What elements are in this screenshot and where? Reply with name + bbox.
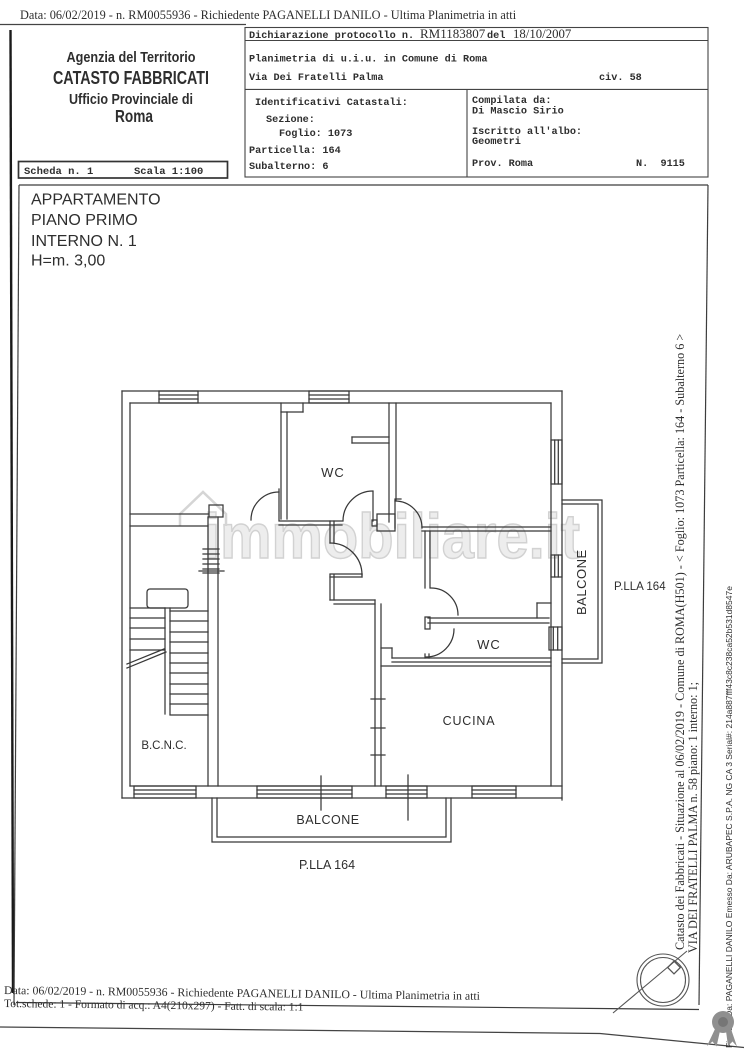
svg-text:VIA DEI FRATELLI PALMA n. 58 p: VIA DEI FRATELLI PALMA n. 58 piano: 1 in… — [686, 682, 700, 953]
svg-text:Prov. Roma: Prov. Roma — [472, 159, 533, 170]
svg-text:del: del — [487, 30, 505, 42]
svg-text:Roma: Roma — [115, 106, 153, 126]
svg-text:INTERNO N. 1: INTERNO N. 1 — [31, 233, 137, 250]
svg-text:P.LLA 164: P.LLA 164 — [299, 858, 355, 872]
svg-text:Agenzia del Territorio: Agenzia del Territorio — [67, 50, 196, 66]
svg-text:18/10/2007: 18/10/2007 — [513, 27, 572, 41]
svg-text:B.C.N.C.: B.C.N.C. — [141, 740, 186, 752]
svg-text:BALCONE: BALCONE — [296, 813, 359, 827]
svg-text:N. 9115: N. 9115 — [636, 159, 685, 170]
svg-text:CUCINA: CUCINA — [443, 714, 496, 728]
svg-text:H=m. 3,00: H=m. 3,00 — [31, 253, 105, 270]
svg-text:immobiliare.it: immobiliare.it — [204, 502, 580, 572]
svg-text:Data: 06/02/2019 - n. RM00559: Data: 06/02/2019 - n. RM0055936 - Richie… — [20, 8, 517, 22]
svg-text:Particella: 164: Particella: 164 — [249, 145, 341, 157]
svg-text:Planimetria di u.i.u. in Comun: Planimetria di u.i.u. in Comune di Roma — [249, 54, 487, 66]
svg-text:Firmato Da: PAGANELLI DANILO E: Firmato Da: PAGANELLI DANILO Emesso Da: … — [724, 586, 734, 1048]
svg-text:Geometri: Geometri — [472, 136, 521, 148]
svg-text:Scheda n. 1: Scheda n. 1 — [24, 166, 93, 178]
svg-text:Di Mascio Sirio: Di Mascio Sirio — [472, 106, 564, 118]
svg-text:Foglio: 1073: Foglio: 1073 — [279, 128, 352, 140]
svg-text:Subalterno: 6: Subalterno: 6 — [249, 161, 328, 173]
svg-text:BALCONE: BALCONE — [574, 549, 589, 615]
svg-text:APPARTAMENTO: APPARTAMENTO — [31, 192, 161, 209]
svg-text:Compilata da:: Compilata da: — [472, 95, 551, 107]
svg-text:Via Dei Fratelli Palma: Via Dei Fratelli Palma — [249, 72, 384, 84]
svg-text:Tot.schede: 1 - Formato di ac: Tot.schede: 1 - Formato di acq.: A4(210x… — [4, 998, 304, 1014]
svg-text:P.LLA 164: P.LLA 164 — [614, 581, 666, 593]
svg-text:PIANO PRIMO: PIANO PRIMO — [31, 212, 138, 229]
svg-text:Identificativi Catastali:: Identificativi Catastali: — [255, 97, 408, 109]
svg-text:Catasto dei Fabbricati - Situa: Catasto dei Fabbricati - Situazione al 0… — [673, 334, 687, 950]
svg-text:Sezione:: Sezione: — [266, 114, 315, 126]
svg-text:Scala 1:100: Scala 1:100 — [134, 166, 203, 178]
svg-text:Dichiarazione protocollo n.: Dichiarazione protocollo n. — [249, 30, 414, 42]
svg-text:WC: WC — [321, 465, 345, 480]
svg-text:RM1183807: RM1183807 — [420, 26, 486, 41]
svg-text:WC: WC — [477, 637, 501, 652]
svg-text:CATASTO FABBRICATI: CATASTO FABBRICATI — [53, 68, 209, 88]
svg-text:civ. 58: civ. 58 — [599, 72, 642, 84]
